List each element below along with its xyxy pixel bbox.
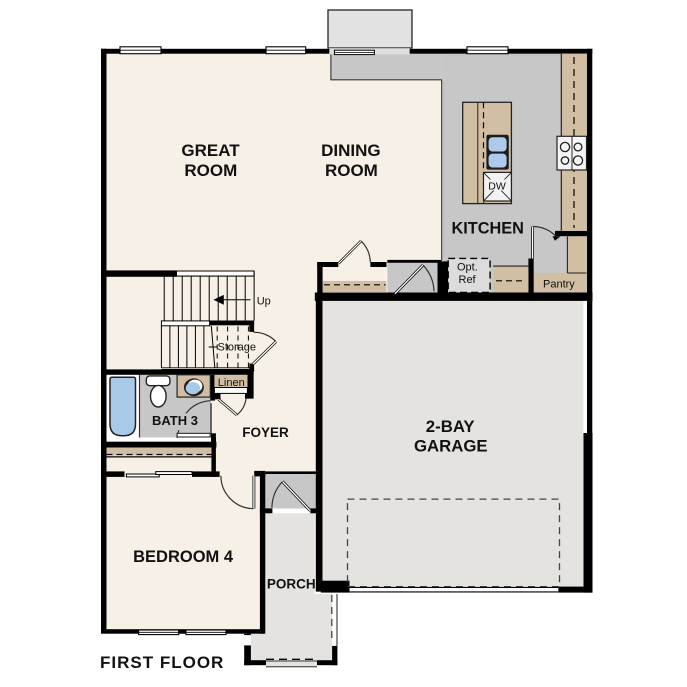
svg-text:Opt.: Opt. [457,261,478,273]
svg-text:Up: Up [257,295,271,307]
svg-text:ROOM: ROOM [184,161,237,180]
svg-text:GARAGE: GARAGE [414,437,488,456]
svg-text:Linen: Linen [218,377,245,389]
svg-text:Pantry: Pantry [543,279,575,291]
svg-text:Storage: Storage [218,342,257,354]
svg-text:BATH 3: BATH 3 [152,413,198,428]
svg-text:DINING: DINING [321,141,381,160]
svg-text:FOYER: FOYER [242,425,289,440]
svg-text:BEDROOM 4: BEDROOM 4 [133,548,234,566]
svg-text:PORCH: PORCH [267,577,316,592]
svg-text:GREAT: GREAT [181,141,240,160]
svg-text:ROOM: ROOM [325,161,378,180]
svg-text:2-BAY: 2-BAY [426,417,475,436]
svg-text:Ref: Ref [459,274,477,286]
svg-text:FIRST FLOOR: FIRST FLOOR [100,653,224,672]
svg-text:DW: DW [488,180,506,192]
svg-text:KITCHEN: KITCHEN [452,220,524,238]
